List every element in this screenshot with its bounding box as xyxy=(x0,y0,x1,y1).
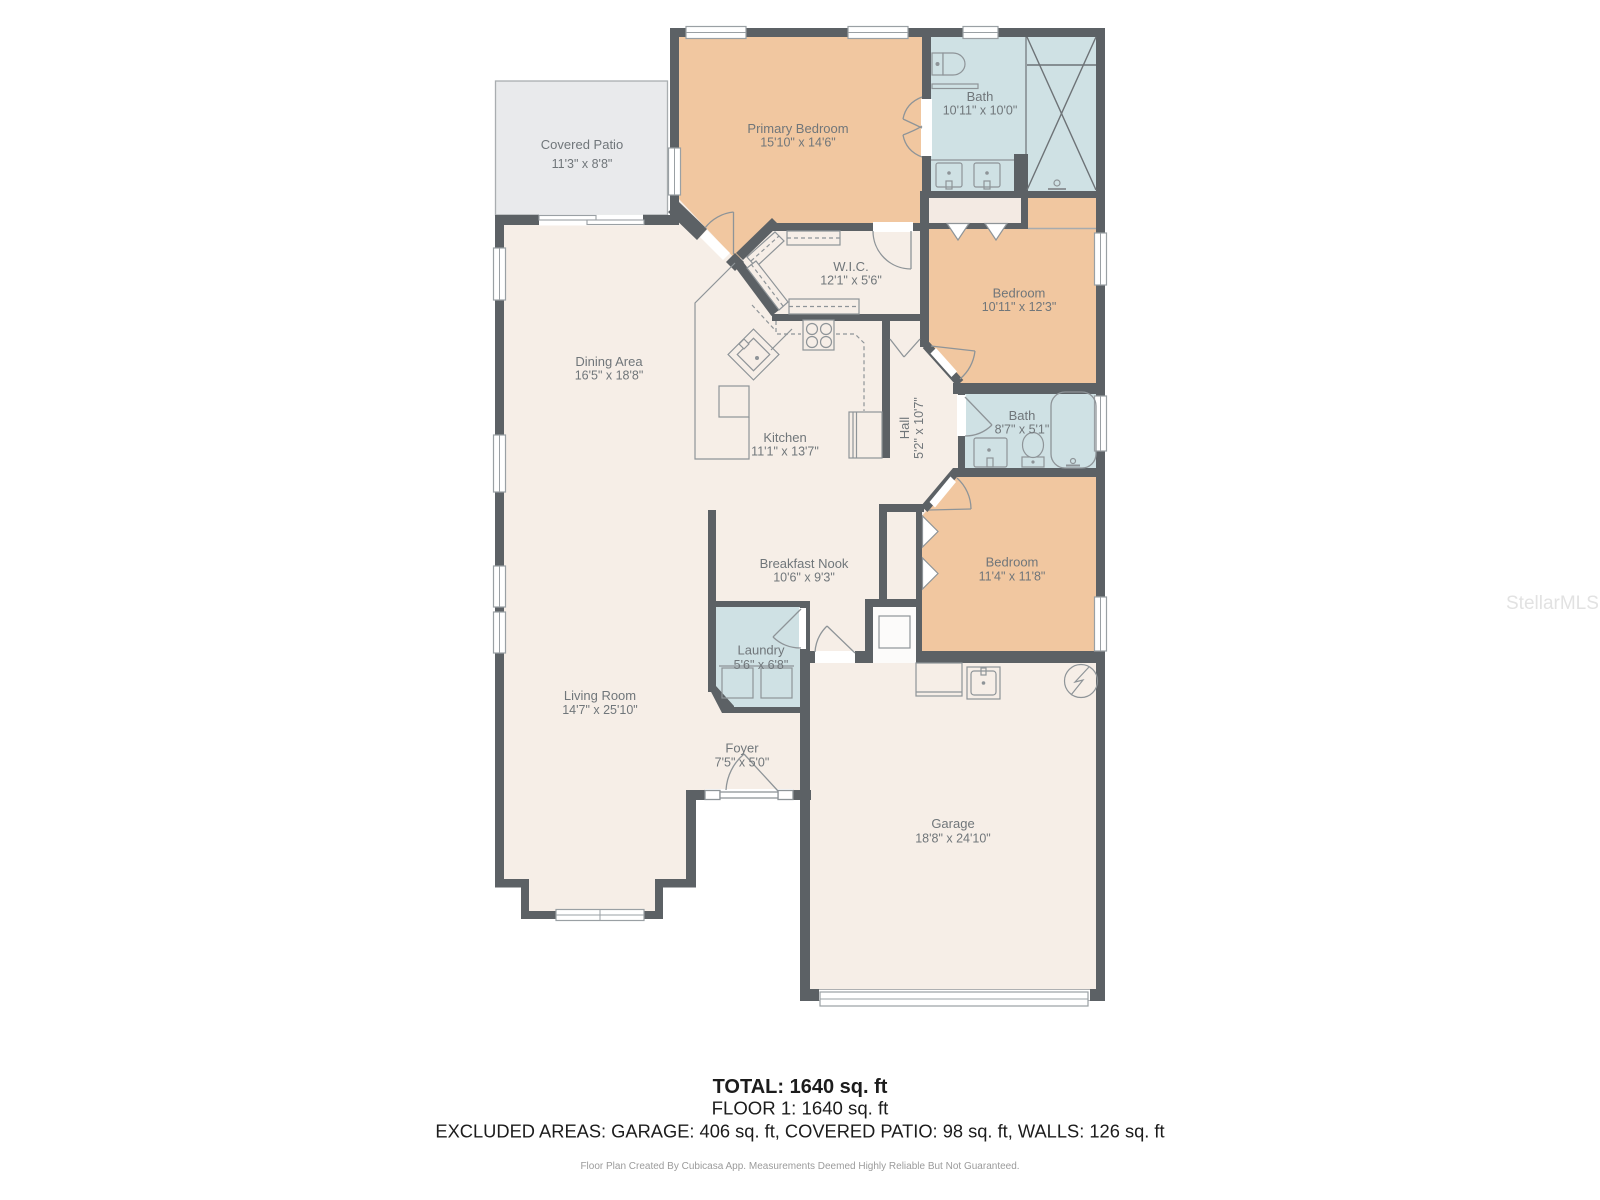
svg-text:15'10" x 14'6": 15'10" x 14'6" xyxy=(760,136,836,150)
svg-text:StellarMLS: StellarMLS xyxy=(1506,593,1599,614)
svg-text:11'4" x 11'8": 11'4" x 11'8" xyxy=(979,570,1046,584)
svg-text:W.I.C.: W.I.C. xyxy=(833,259,868,274)
svg-text:12'1" x 5'6": 12'1" x 5'6" xyxy=(820,274,882,288)
svg-text:Dining Area: Dining Area xyxy=(575,354,643,369)
svg-text:Breakfast Nook: Breakfast Nook xyxy=(760,556,849,571)
svg-text:Garage: Garage xyxy=(931,816,974,831)
svg-text:16'5" x 18'8": 16'5" x 18'8" xyxy=(575,369,644,383)
svg-text:10'11" x 10'0": 10'11" x 10'0" xyxy=(943,104,1018,118)
svg-text:10'6" x 9'3": 10'6" x 9'3" xyxy=(773,571,835,585)
svg-text:TOTAL: 1640 sq. ft: TOTAL: 1640 sq. ft xyxy=(713,1076,888,1098)
svg-text:EXCLUDED AREAS: GARAGE: 406 sq: EXCLUDED AREAS: GARAGE: 406 sq. ft, COVE… xyxy=(435,1121,1164,1142)
svg-text:Covered Patio: Covered Patio xyxy=(541,137,623,152)
svg-text:5'6" x 6'8": 5'6" x 6'8" xyxy=(734,658,789,672)
svg-text:Laundry: Laundry xyxy=(738,643,785,658)
svg-text:Foyer: Foyer xyxy=(725,741,759,756)
svg-text:5'2" x 10'7": 5'2" x 10'7" xyxy=(912,397,926,459)
svg-text:Bedroom: Bedroom xyxy=(986,555,1039,570)
svg-text:8'7" x 5'1": 8'7" x 5'1" xyxy=(995,423,1050,437)
svg-text:Bedroom: Bedroom xyxy=(993,286,1046,301)
svg-text:10'11" x 12'3": 10'11" x 12'3" xyxy=(982,300,1057,314)
svg-text:11'1" x 13'7": 11'1" x 13'7" xyxy=(751,445,819,459)
svg-text:Kitchen: Kitchen xyxy=(763,430,806,445)
svg-text:Bath: Bath xyxy=(1009,408,1036,423)
svg-text:11'3" x 8'8": 11'3" x 8'8" xyxy=(552,157,613,171)
svg-text:Living Room: Living Room xyxy=(564,688,636,703)
svg-text:FLOOR 1: 1640 sq. ft: FLOOR 1: 1640 sq. ft xyxy=(712,1098,890,1119)
svg-text:18'8" x 24'10": 18'8" x 24'10" xyxy=(915,832,991,846)
svg-text:7'5" x 5'0": 7'5" x 5'0" xyxy=(715,756,770,770)
svg-text:Hall: Hall xyxy=(897,417,912,440)
svg-text:Primary Bedroom: Primary Bedroom xyxy=(747,121,848,136)
svg-text:Bath: Bath xyxy=(967,89,994,104)
svg-text:Floor Plan Created By Cubicasa: Floor Plan Created By Cubicasa App. Meas… xyxy=(580,1161,1019,1172)
svg-text:14'7" x 25'10": 14'7" x 25'10" xyxy=(562,703,638,717)
